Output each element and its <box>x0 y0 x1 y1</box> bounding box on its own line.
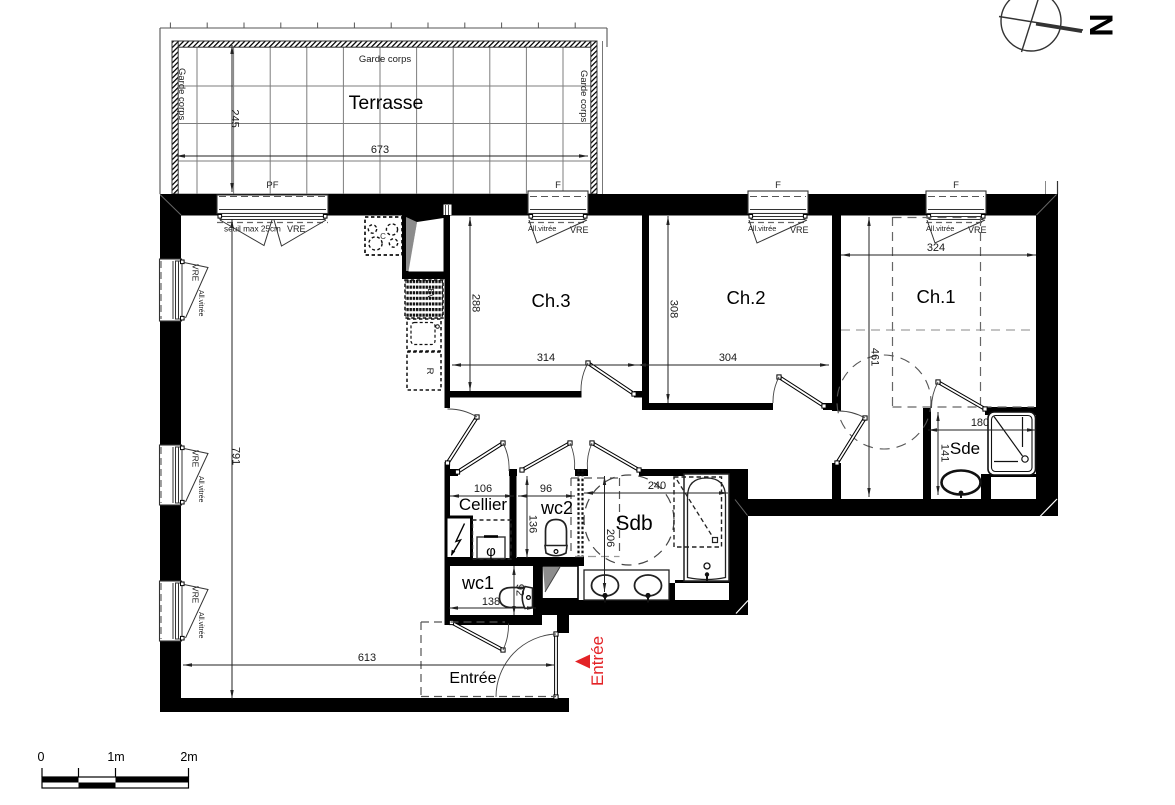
svg-text:314: 314 <box>537 352 555 364</box>
svg-text:304: 304 <box>719 352 737 364</box>
svg-text:461: 461 <box>869 348 881 366</box>
svg-text:Entrée: Entrée <box>588 636 607 686</box>
svg-text:288: 288 <box>470 294 482 312</box>
svg-text:All.vitrée: All.vitrée <box>528 224 556 233</box>
svg-text:Ch.1: Ch.1 <box>916 286 955 307</box>
svg-text:Cellier: Cellier <box>459 495 508 514</box>
svg-text:VRE: VRE <box>570 225 589 235</box>
svg-text:308: 308 <box>668 300 680 318</box>
svg-text:240: 240 <box>648 480 666 492</box>
svg-text:92: 92 <box>514 584 526 596</box>
svg-text:324: 324 <box>927 242 945 254</box>
svg-text:VRE: VRE <box>191 586 201 604</box>
svg-text:VRE: VRE <box>968 225 987 235</box>
svg-text:138: 138 <box>482 596 500 608</box>
svg-text:Terrasse: Terrasse <box>349 92 424 114</box>
svg-text:VRE: VRE <box>287 224 306 234</box>
svg-text:1m: 1m <box>107 750 124 764</box>
svg-text:All.vitrée: All.vitrée <box>197 612 204 639</box>
svg-text:96: 96 <box>540 483 552 495</box>
svg-text:All.vitrée: All.vitrée <box>197 290 204 317</box>
svg-text:245: 245 <box>229 109 241 127</box>
svg-text:791: 791 <box>230 447 242 465</box>
svg-text:All.vitrée: All.vitrée <box>926 224 954 233</box>
svg-text:Garde corps: Garde corps <box>578 70 589 123</box>
svg-text:F: F <box>555 180 561 191</box>
svg-text:C: C <box>380 232 386 241</box>
svg-text:0: 0 <box>38 750 45 764</box>
svg-text:613: 613 <box>358 652 376 664</box>
svg-text:F: F <box>775 180 781 191</box>
svg-text:PF: PF <box>266 180 278 191</box>
svg-text:Garde corps: Garde corps <box>359 54 412 65</box>
svg-text:φ: φ <box>486 543 496 560</box>
svg-text:Sde: Sde <box>950 439 980 458</box>
svg-text:All.vitrée: All.vitrée <box>748 224 776 233</box>
svg-text:wc2: wc2 <box>540 498 573 518</box>
svg-text:673: 673 <box>371 144 389 156</box>
svg-text:206: 206 <box>604 529 616 547</box>
svg-text:F: F <box>953 180 959 191</box>
svg-text:141: 141 <box>939 444 951 462</box>
svg-text:VRE: VRE <box>191 450 201 468</box>
svg-text:All.vitrée: All.vitrée <box>197 476 204 503</box>
svg-text:VRE: VRE <box>191 264 201 282</box>
svg-text:106: 106 <box>474 483 492 495</box>
svg-text:wc1: wc1 <box>461 573 494 593</box>
svg-text:Entrée: Entrée <box>449 670 496 687</box>
svg-text:Sdb: Sdb <box>615 512 652 535</box>
svg-text:2m: 2m <box>180 750 197 764</box>
svg-text:R: R <box>424 368 435 375</box>
svg-text:Garde corps: Garde corps <box>176 68 187 121</box>
svg-text:EV: EV <box>426 289 435 300</box>
svg-text:N: N <box>1083 13 1119 36</box>
svg-text:180: 180 <box>971 417 989 429</box>
svg-text:Ch.3: Ch.3 <box>531 290 570 311</box>
svg-text:VRE: VRE <box>790 225 809 235</box>
svg-text:Ch.2: Ch.2 <box>726 287 765 308</box>
svg-text:136: 136 <box>527 515 539 533</box>
